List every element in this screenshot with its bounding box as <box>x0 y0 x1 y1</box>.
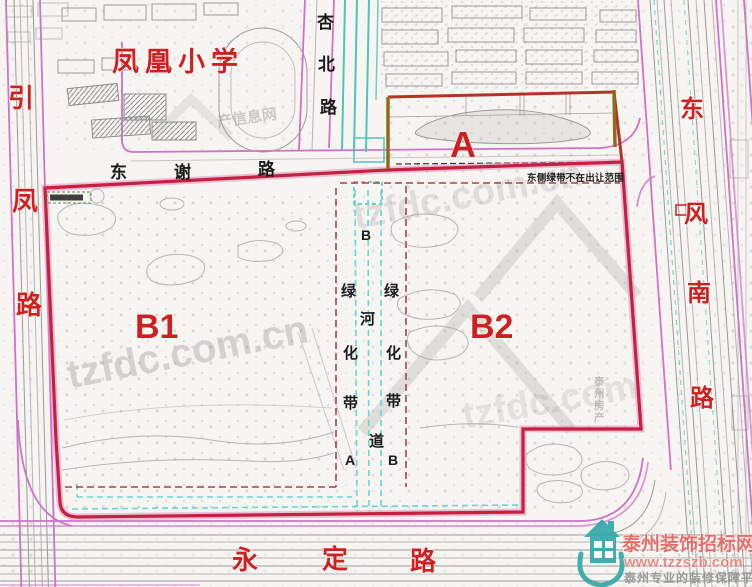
svg-text:绿: 绿 <box>384 282 400 300</box>
svg-text:谢: 谢 <box>174 162 191 182</box>
svg-text:泰: 泰 <box>593 375 605 388</box>
svg-text:产: 产 <box>594 411 605 424</box>
svg-text:路: 路 <box>258 159 276 179</box>
svg-text:引: 引 <box>8 83 34 113</box>
svg-text:永: 永 <box>232 545 258 575</box>
logo-tagline: 泰州专业的装修保障平台 <box>623 570 752 585</box>
svg-text:风: 风 <box>684 201 708 228</box>
svg-text:路: 路 <box>320 97 338 117</box>
parcel-b2-label: B2 <box>470 308 513 346</box>
parcel-b1-label: B1 <box>135 308 178 346</box>
svg-text:带: 带 <box>386 393 401 410</box>
parcel-a-label: A <box>450 124 476 165</box>
logo-title: 泰州装饰招标网 <box>621 532 752 555</box>
svg-text:南: 南 <box>687 280 711 307</box>
greenbelt-note: 东侧绿带不在出让范围 <box>527 172 624 184</box>
svg-text:房: 房 <box>594 399 605 412</box>
svg-text:杏: 杏 <box>317 12 334 32</box>
svg-text:化: 化 <box>343 344 358 362</box>
svg-text:东: 东 <box>110 162 127 182</box>
svg-text:河: 河 <box>360 310 375 328</box>
svg-text:路: 路 <box>16 290 43 320</box>
svg-text:道: 道 <box>369 432 384 450</box>
svg-text:路: 路 <box>410 546 437 576</box>
svg-text:北: 北 <box>318 55 335 74</box>
svg-text:凤: 凤 <box>12 186 38 216</box>
svg-text:带: 带 <box>343 395 358 412</box>
river-marker-a-bottom: A <box>345 452 355 468</box>
watermark-vertical-taizhou: 泰 州 房 产 <box>593 375 605 424</box>
river-marker-b-bottom: B <box>388 452 398 468</box>
svg-text:东: 东 <box>680 95 704 123</box>
svg-text:绿: 绿 <box>341 282 357 300</box>
svg-text:化: 化 <box>386 344 401 362</box>
planning-map: tzfdc.com.cn tzfdc.com.cn tzfdc.com 产信息网… <box>0 0 752 587</box>
svg-text:定: 定 <box>322 544 348 574</box>
school-name-label: 凤凰小学 <box>112 46 244 77</box>
river-marker-b-top: B <box>361 227 371 243</box>
svg-text:路: 路 <box>690 384 715 412</box>
logo-url: www.tzzszb.com <box>623 554 743 571</box>
map-canvas: tzfdc.com.cn tzfdc.com.cn tzfdc.com 产信息网… <box>0 0 752 587</box>
svg-text:州: 州 <box>593 388 605 400</box>
road-xingbei-label: 杏 北 路 <box>317 12 338 117</box>
